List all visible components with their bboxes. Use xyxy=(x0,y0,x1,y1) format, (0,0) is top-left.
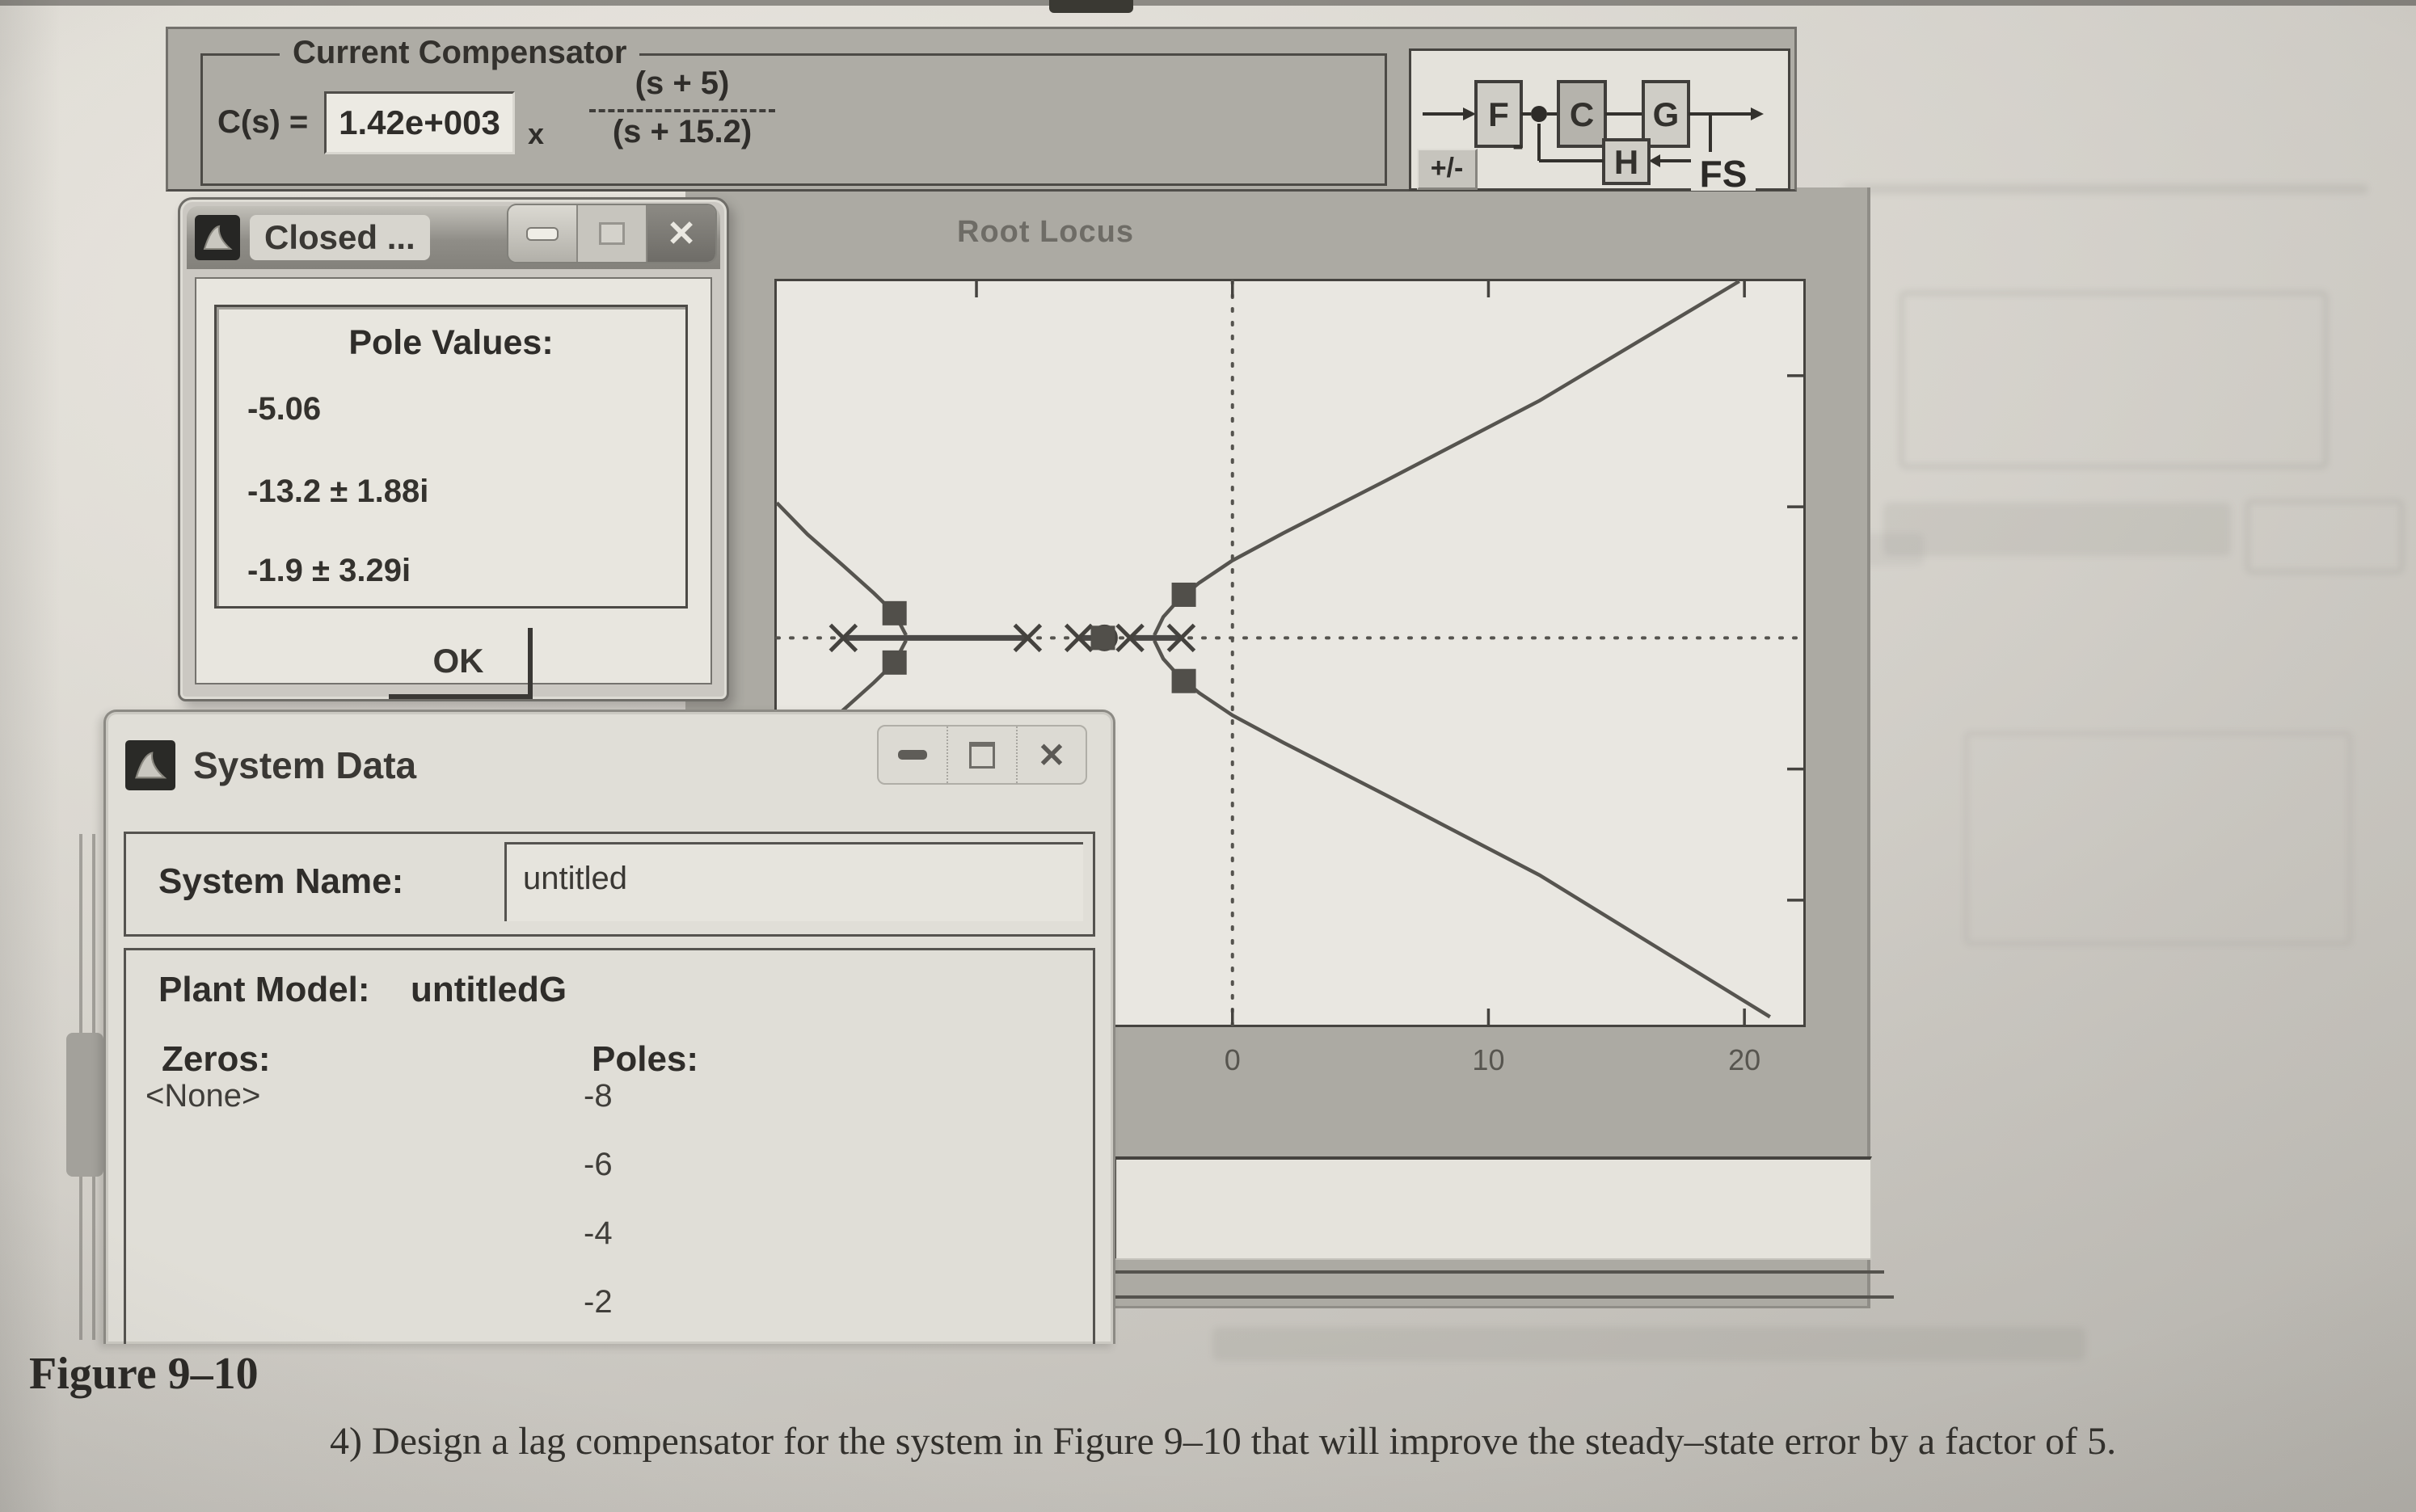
restore-icon xyxy=(969,742,995,769)
x-tick-label: 10 xyxy=(1472,1043,1504,1076)
plot-title: Root Locus xyxy=(957,215,1297,250)
arrowhead-icon xyxy=(1649,154,1660,167)
block-C-label: C xyxy=(1570,95,1594,133)
denominator: (s + 15.2) xyxy=(589,114,775,150)
bleedthrough-artifact xyxy=(1843,184,2368,194)
poles-header: Poles: xyxy=(592,1039,698,1080)
sign-toggle-button[interactable]: +/- xyxy=(1417,149,1478,190)
closed-loop-pole-marker[interactable] xyxy=(1090,625,1115,650)
closed-loop-pole-marker[interactable] xyxy=(1172,669,1196,693)
multiply-sign: x xyxy=(528,117,544,151)
fs-button[interactable]: FS xyxy=(1691,152,1756,191)
pole-item[interactable]: -6 xyxy=(584,1147,613,1186)
page-edge xyxy=(0,0,2416,6)
pole-item[interactable]: -8 xyxy=(584,1078,613,1117)
window-titlebar[interactable]: System Data ✕ xyxy=(106,712,1113,819)
close-icon: ✕ xyxy=(667,213,697,255)
close-button[interactable]: ✕ xyxy=(1018,727,1086,783)
gain-input[interactable]: 1.42e+003 xyxy=(324,91,515,154)
block-H-label: H xyxy=(1614,143,1638,181)
numerator: (s + 5) xyxy=(589,57,775,104)
pole-values-heading: Pole Values: xyxy=(217,323,685,363)
current-compensator-panel: Current Compensator C(s) = 1.42e+003 x (… xyxy=(166,27,1797,192)
closed-loop-poles-dialog: Closed ... ✕ Pole Values: -5.06 -13.2 ± … xyxy=(178,197,729,701)
window-bottom-line xyxy=(1107,1295,1894,1299)
matlab-icon xyxy=(125,740,175,790)
window-controls: ✕ xyxy=(507,204,717,263)
bleedthrough-artifact xyxy=(1899,291,2328,469)
window-bottom-line xyxy=(1102,1270,1884,1274)
minus-sign-label: - xyxy=(1512,125,1524,163)
closed-loop-pole-marker[interactable] xyxy=(883,601,907,625)
pole-item[interactable]: -2 xyxy=(584,1284,613,1323)
bleedthrough-artifact xyxy=(1964,731,2352,946)
block-G-label: G xyxy=(1653,95,1680,133)
close-icon: ✕ xyxy=(1037,735,1065,775)
figure-caption: Figure 9–10 xyxy=(29,1348,259,1400)
bleedthrough-artifact xyxy=(2245,499,2404,574)
compensator-fraction: (s + 5) (s + 15.2) xyxy=(589,57,775,150)
problem-text: 4) Design a lag compensator for the syst… xyxy=(330,1419,2411,1464)
block-F-label: F xyxy=(1488,95,1509,133)
system-name-label: System Name: xyxy=(158,861,403,902)
fraction-bar xyxy=(589,109,775,112)
closed-loop-pole-marker[interactable] xyxy=(1172,583,1196,607)
plant-model-value: untitledG xyxy=(411,970,567,1010)
system-name-group: System Name: untitled xyxy=(124,832,1095,937)
arrowhead-icon xyxy=(1751,107,1764,120)
minimize-icon xyxy=(526,227,559,241)
minimize-icon xyxy=(898,750,927,760)
pole-item[interactable]: -4 xyxy=(584,1215,613,1254)
minimize-button[interactable] xyxy=(879,727,948,783)
zeros-item[interactable]: <None> xyxy=(145,1078,260,1117)
system-data-window: System Data ✕ System Name: untitled Plan… xyxy=(103,710,1115,1344)
ok-button[interactable]: OK xyxy=(389,628,533,699)
minimize-button[interactable] xyxy=(508,205,578,262)
status-strip xyxy=(1113,1156,1872,1260)
zeros-list: <None> xyxy=(145,1078,260,1147)
photo-artifact xyxy=(1049,0,1133,13)
x-tick-label: 20 xyxy=(1728,1043,1760,1076)
plant-model-label: Plant Model: xyxy=(158,970,370,1010)
x-tick-label: 0 xyxy=(1225,1043,1241,1076)
pole-value: -13.2 ± 1.88i xyxy=(247,474,428,510)
bleedthrough-artifact xyxy=(1212,1327,2085,1361)
dialog-titlebar[interactable]: Closed ... ✕ xyxy=(187,206,720,269)
pole-values-box: Pole Values: -5.06 -13.2 ± 1.88i -1.9 ± … xyxy=(214,305,688,609)
dialog-title: Closed ... xyxy=(250,215,430,260)
zeros-header: Zeros: xyxy=(162,1039,270,1080)
plant-model-group: Plant Model: untitledG Zeros: Poles: <No… xyxy=(124,948,1095,1344)
closed-loop-pole-marker[interactable] xyxy=(883,651,907,675)
bleedthrough-artifact xyxy=(1883,503,2231,556)
maximize-button[interactable] xyxy=(578,205,647,262)
compensator-groupbox: Current Compensator C(s) = 1.42e+003 x (… xyxy=(200,53,1387,186)
maximize-icon xyxy=(599,222,625,245)
poles-list: -8 -6 -4 -2 xyxy=(584,1078,613,1344)
locus-branch xyxy=(1154,641,1770,1017)
cs-equals-label: C(s) = xyxy=(217,104,308,141)
pole-value: -1.9 ± 3.29i xyxy=(247,553,411,589)
close-button[interactable]: ✕ xyxy=(647,205,715,262)
locus-branch xyxy=(1154,281,1739,635)
system-name-input[interactable]: untitled xyxy=(504,842,1083,921)
sum-junction xyxy=(1531,106,1547,122)
restore-button[interactable] xyxy=(948,727,1018,783)
pole-value: -5.06 xyxy=(247,391,321,427)
window-title: System Data xyxy=(193,743,416,787)
arrowhead-icon xyxy=(1463,107,1476,120)
matlab-icon xyxy=(195,215,240,260)
dialog-body: Pole Values: -5.06 -13.2 ± 1.88i -1.9 ± … xyxy=(195,277,712,684)
window-controls: ✕ xyxy=(877,725,1087,785)
compensator-group-label: Current Compensator xyxy=(280,35,639,71)
window-shadow-fragment xyxy=(66,1033,103,1177)
